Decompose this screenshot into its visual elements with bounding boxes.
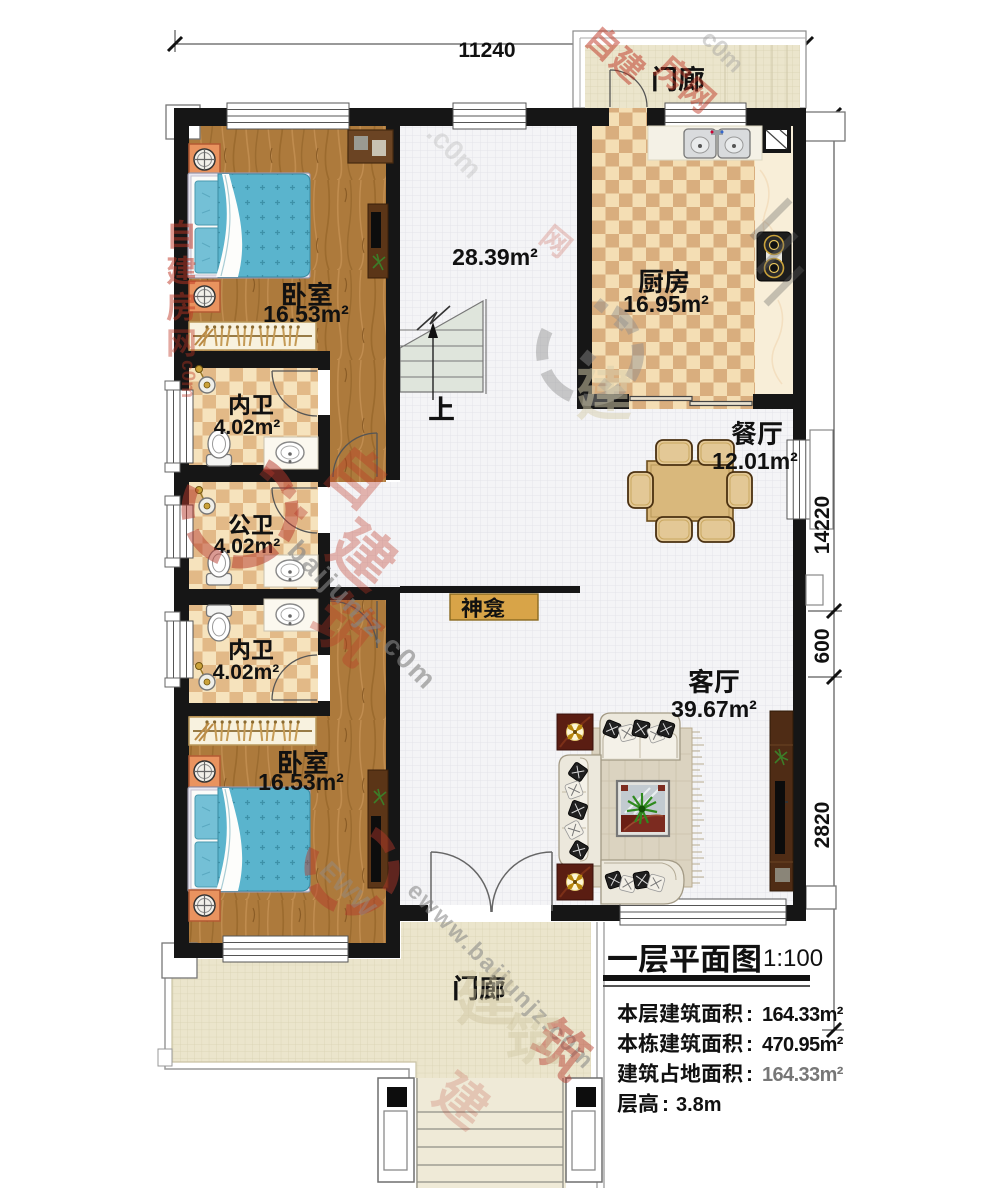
svg-text:39.67m²: 39.67m² bbox=[671, 696, 757, 722]
svg-text:16.53m²: 16.53m² bbox=[263, 301, 349, 327]
svg-text::: : bbox=[746, 1063, 753, 1086]
svg-text:14220: 14220 bbox=[811, 496, 834, 554]
svg-text:3.8m: 3.8m bbox=[676, 1094, 722, 1116]
svg-text:600: 600 bbox=[811, 628, 834, 663]
svg-text:2820: 2820 bbox=[811, 802, 834, 849]
svg-text::: : bbox=[662, 1093, 669, 1116]
svg-text:4.02m²: 4.02m² bbox=[213, 661, 280, 684]
svg-text:16.95m²: 16.95m² bbox=[623, 291, 709, 317]
svg-text:4.02m²: 4.02m² bbox=[214, 416, 281, 439]
svg-text:164.33m²: 164.33m² bbox=[762, 1064, 844, 1086]
svg-text:12.01m²: 12.01m² bbox=[712, 448, 798, 474]
svg-text:c0m: c0m bbox=[177, 360, 198, 398]
svg-text:16.53m²: 16.53m² bbox=[258, 769, 344, 795]
svg-text::: : bbox=[746, 1003, 753, 1026]
svg-text:164.33m²: 164.33m² bbox=[762, 1004, 844, 1026]
svg-text:11240: 11240 bbox=[458, 39, 515, 62]
svg-text:1:100: 1:100 bbox=[763, 945, 823, 972]
svg-text:470.95m²: 470.95m² bbox=[762, 1034, 844, 1056]
svg-text:28.39m²: 28.39m² bbox=[452, 244, 538, 270]
svg-text::: : bbox=[746, 1033, 753, 1056]
